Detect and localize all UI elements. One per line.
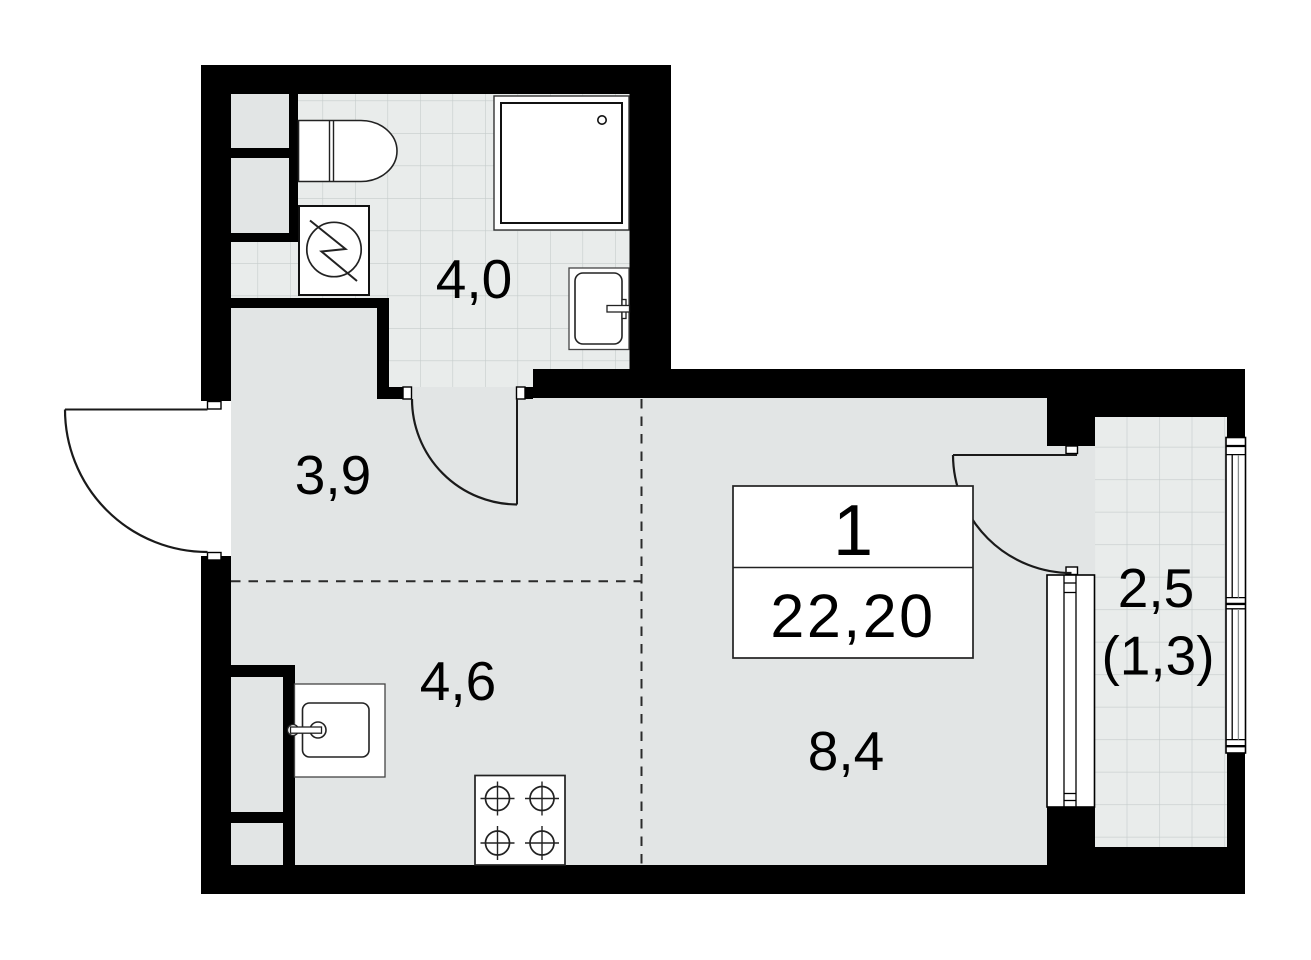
svg-text:22,20: 22,20 <box>770 582 935 650</box>
svg-text:(1,3): (1,3) <box>1101 625 1214 687</box>
svg-text:3,9: 3,9 <box>295 444 371 506</box>
svg-text:1: 1 <box>833 491 873 571</box>
svg-text:4,6: 4,6 <box>420 650 496 712</box>
svg-text:8,4: 8,4 <box>808 720 884 782</box>
svg-text:2,5: 2,5 <box>1118 557 1194 619</box>
svg-text:4,0: 4,0 <box>436 248 512 310</box>
